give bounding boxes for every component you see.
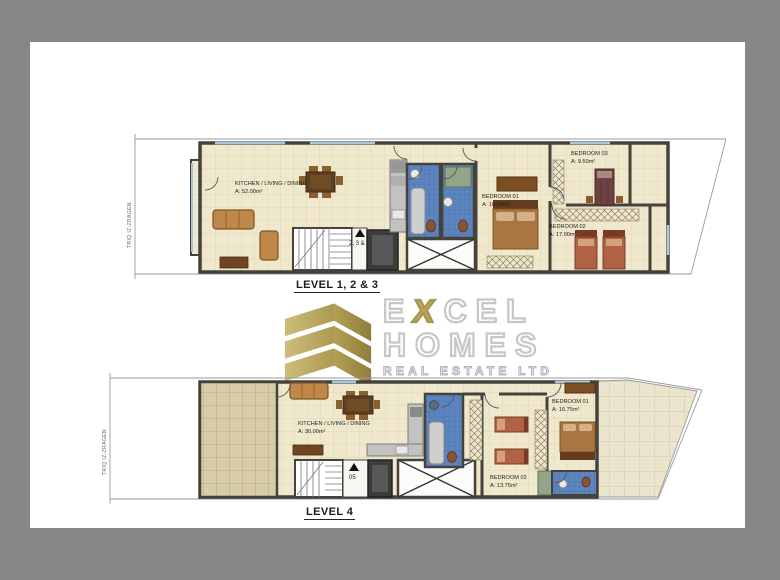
logo-line-excel: EXCEL — [383, 294, 573, 328]
kitchen-area: A: 30.00m² — [298, 429, 325, 435]
bedroom1-area: A: 16.50m² — [482, 202, 509, 208]
bedroom2-area: A: 13.75m² — [490, 483, 517, 489]
wardrobe-bedroom3-upper — [553, 160, 564, 204]
level-123-label: LEVEL 1, 2 & 3 — [294, 279, 380, 293]
sink-icon — [444, 198, 453, 207]
floorplan-sheet: TRIQ IZ-ZRAGEN — [30, 42, 745, 528]
heater-icon — [430, 401, 439, 410]
rug-upper — [220, 257, 248, 268]
shower-icon — [445, 167, 471, 187]
elevator-upper — [367, 230, 398, 270]
bathroom-main-lower — [425, 394, 463, 467]
armchair-upper — [260, 231, 278, 260]
toilet-icon — [427, 220, 436, 232]
staircase-lower — [295, 460, 343, 497]
logo-gold-x: X — [411, 294, 446, 328]
kitchen-label: KITCHEN / LIVING / DINING — [298, 421, 370, 427]
excel-homes-logo-text: EXCEL HOMES REAL ESTATE LTD — [383, 294, 573, 378]
street-name-lower: TRIQ IZ-ZRAGEN — [102, 429, 108, 475]
stair-label-lower: 05 — [349, 475, 356, 481]
bedroom1-label: BEDROOM 01 — [482, 194, 519, 200]
sink-icon — [559, 480, 567, 488]
shower-icon — [538, 471, 552, 495]
street-name-upper: TRIQ IZ-ZRAGEN — [127, 202, 133, 248]
bedroom1-area: A: 16.75m² — [552, 407, 579, 413]
staircase-upper — [293, 228, 352, 270]
wardrobe-hall-lower — [470, 400, 482, 460]
toilet-icon — [582, 477, 590, 487]
bathroom-1-upper — [407, 164, 440, 238]
kitchen-label: KITCHEN / LIVING / DINING — [235, 181, 307, 187]
toilet-icon — [448, 452, 457, 463]
logo-line-homes: HOMES — [383, 328, 573, 362]
bedroom2-label: BEDROOM 02 — [549, 224, 586, 230]
wardrobe-bedroom1-upper — [487, 256, 533, 268]
floorplan-level-123: TRIQ IZ-ZRAGEN — [125, 130, 740, 292]
bedroom3-area: A: 9.50m² — [571, 159, 595, 165]
wardrobe-bedroom2-lower — [535, 410, 547, 469]
bathroom-2-upper — [442, 164, 474, 238]
shaft-void-upper — [407, 239, 475, 270]
sofa-upper — [213, 210, 254, 229]
bathtub-icon — [411, 188, 425, 234]
bathtub-icon — [429, 422, 444, 464]
kitchen-area: A: 52.00m² — [235, 189, 262, 195]
kitchen-counter-upper — [390, 160, 407, 232]
level-4-label: LEVEL 4 — [304, 506, 355, 520]
floorplan-level-4: TRIQ IZ-ZRAGEN — [100, 367, 740, 517]
wardrobe-bedroom2-upper — [555, 209, 639, 221]
terrace-tiled-lower — [200, 382, 277, 497]
dresser-icon — [565, 383, 595, 393]
dresser-icon — [497, 177, 537, 191]
bedroom1-label: BEDROOM 01 — [552, 399, 589, 405]
sofa-lower — [290, 383, 328, 399]
rug-lower — [293, 445, 323, 455]
bedroom3-label: BEDROOM 03 — [571, 151, 608, 157]
bedroom2-label: BEDROOM 02 — [490, 475, 527, 481]
toilet-icon — [459, 220, 468, 232]
bathroom-ensuite-lower — [538, 471, 597, 495]
screenshot-canvas: TRIQ IZ-ZRAGEN — [0, 0, 780, 580]
elevator-lower — [368, 460, 392, 497]
bed-bedroom1-upper — [493, 177, 538, 249]
bedroom2-area: A: 17.00m² — [549, 232, 576, 238]
